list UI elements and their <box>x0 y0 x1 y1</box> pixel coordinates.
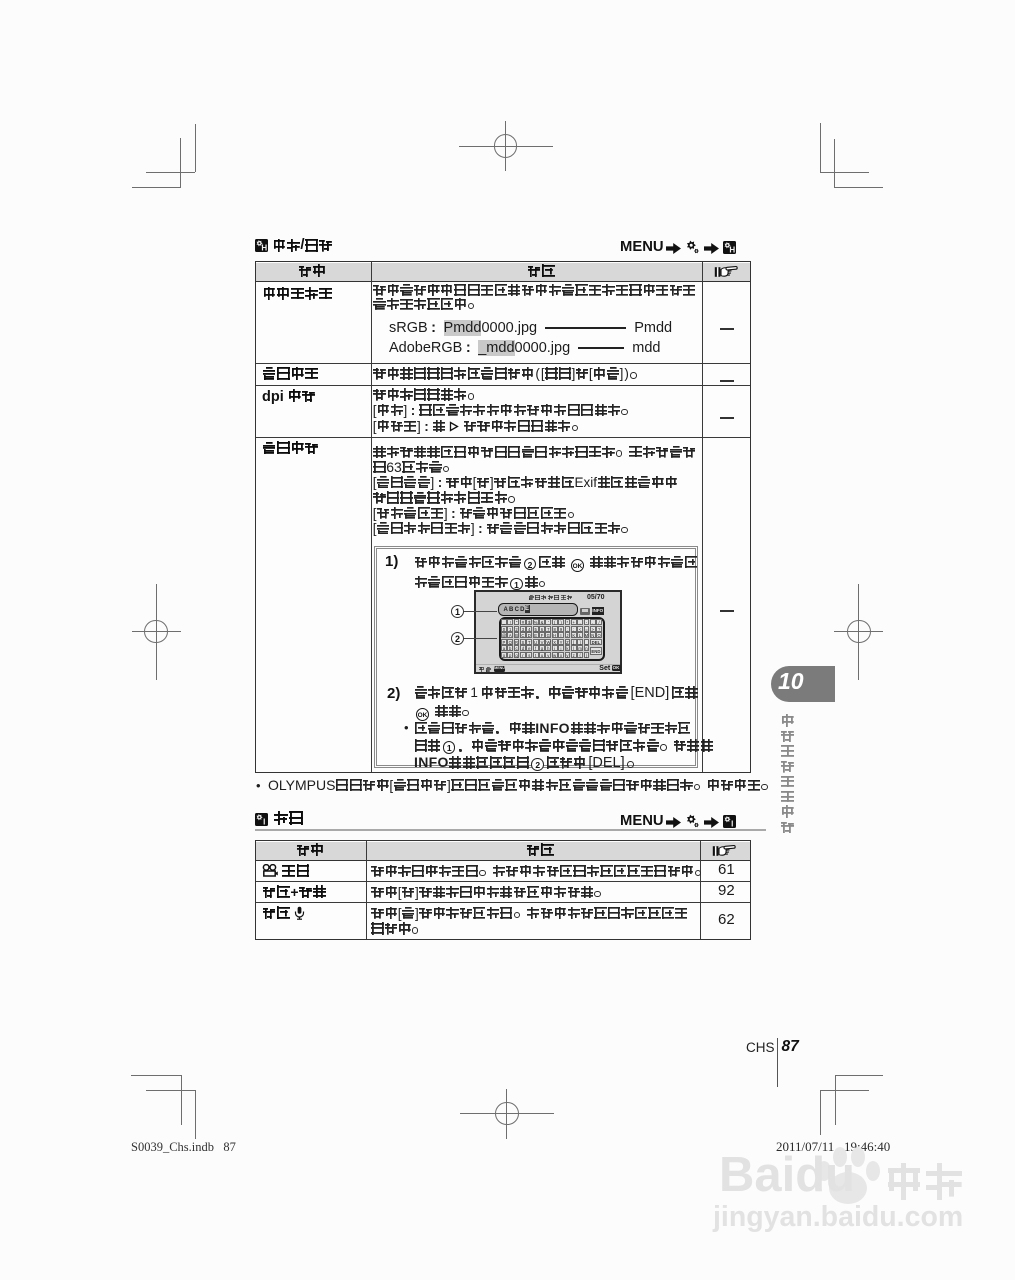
svg-text:H: H <box>729 245 735 254</box>
svg-text:I: I <box>263 818 265 827</box>
svg-text:H: H <box>261 244 267 253</box>
svg-text:I: I <box>731 819 733 828</box>
